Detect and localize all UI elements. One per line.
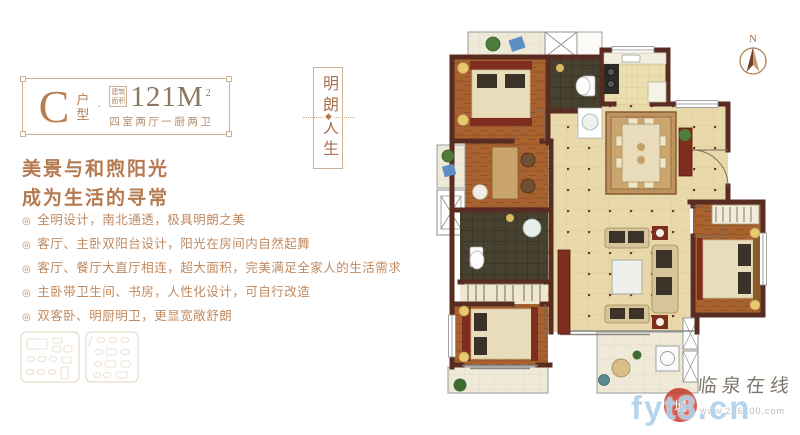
lamp-icon — [458, 115, 469, 126]
compass-icon: N — [740, 33, 766, 74]
washbasin-icon — [582, 114, 598, 130]
patio-table-icon — [612, 359, 630, 377]
headline-line1: 美景与和煦阳光 — [22, 155, 169, 184]
lamp-icon — [459, 352, 469, 362]
plaque-divider-dot: · — [97, 99, 101, 114]
feature-text: 双客卧、明厨明卫，更显宽敞舒朗 — [37, 305, 232, 324]
feature-text: 全明设计，南北通透，极具明朗之美 — [37, 209, 245, 228]
lamp-icon — [459, 306, 469, 316]
shaft-box — [577, 32, 602, 57]
bed-master — [459, 306, 538, 362]
banner-word-bottom: 人生 — [320, 119, 336, 161]
dining-set — [606, 112, 676, 194]
plant-icon — [454, 379, 467, 392]
stove-icon — [607, 80, 614, 87]
bullet-icon: ◎ — [22, 288, 31, 299]
feature-text: 客厅、主卧双阳台设计，阳光在房间内自然起舞 — [37, 233, 310, 252]
unit-label-char: 户 — [76, 93, 89, 108]
unit-type-label: 户 型 — [76, 93, 89, 123]
plant-icon — [679, 129, 691, 141]
dining-table — [622, 124, 660, 182]
plaque-corner — [20, 131, 26, 137]
unit-letter: C — [39, 86, 70, 127]
watermark-domain-large: fyt8.cn — [631, 389, 751, 427]
feature-item: ◎ 客厅、餐厅大直厅相连，超大面积，完美满足全家人的生活需求 — [22, 257, 407, 281]
chair-icon — [521, 153, 535, 167]
balcony-top — [468, 32, 545, 57]
toilet-icon — [470, 251, 484, 269]
desk — [492, 147, 518, 199]
feature-item: ◎ 主卧带卫生间、书房，人性化设计，可自行改造 — [22, 281, 407, 305]
unit-label-char: 型 — [76, 108, 89, 123]
bullet-icon: ◎ — [22, 312, 31, 323]
patio-chair-icon — [599, 375, 610, 386]
area-prefix: 建筑 面积 — [109, 86, 127, 107]
plant-icon — [633, 351, 642, 360]
feature-list: ◎ 全明设计，南北通透，极具明朗之美 ◎ 客厅、主卧双阳台设计，阳光在房间内自然… — [22, 209, 407, 329]
chair-icon — [521, 179, 535, 193]
bullet-icon: ◎ — [22, 216, 31, 227]
plaque-corner — [226, 131, 232, 137]
sink-icon — [622, 55, 640, 62]
plant-icon — [486, 37, 500, 51]
feature-item: ◎ 全明设计，南北通透，极具明朗之美 — [22, 209, 407, 233]
mini-floorplan-thumbnails — [20, 331, 139, 383]
armchair-icon — [473, 185, 488, 200]
tv-console — [558, 250, 570, 334]
feature-text: 客厅、餐厅大直厅相连，超大面积，完美满足全家人的生活需求 — [37, 257, 401, 276]
bathtub-icon — [523, 219, 541, 237]
area-block: 建筑 面积 121M 2 四室两厅一厨两卫 — [109, 84, 213, 130]
floorplan-drawing: N — [430, 25, 775, 400]
plant-icon — [442, 150, 454, 162]
mini-floorplan-2 — [85, 331, 139, 383]
feature-text: 主卧带卫生间、书房，人性化设计，可自行改造 — [37, 281, 310, 300]
bullet-icon: ◎ — [22, 240, 31, 251]
feature-item: ◎ 双客卧、明厨明卫，更显宽敞舒朗 — [22, 305, 407, 329]
bullet-icon: ◎ — [22, 264, 31, 275]
shower-icon — [556, 64, 564, 72]
compass-label: N — [749, 33, 757, 45]
area-superscript: 2 — [206, 88, 211, 99]
banner-diamond-icon: ◆ — [323, 111, 334, 122]
coffee-table — [612, 260, 642, 294]
wardrobe — [712, 205, 759, 224]
lamp-icon — [458, 63, 469, 74]
feature-item: ◎ 客厅、主卧双阳台设计，阳光在房间内自然起舞 — [22, 233, 407, 257]
washing-machine-icon — [656, 346, 679, 371]
plaque-corner — [20, 76, 26, 82]
plaque-corner — [226, 76, 232, 82]
fridge-icon — [648, 82, 666, 102]
area-value: 121M — [130, 84, 203, 112]
mini-floorplan-1 — [20, 331, 80, 383]
wardrobe-corridor — [460, 282, 548, 304]
headline: 美景与和煦阳光 成为生活的寻常 — [22, 155, 169, 214]
shower-icon — [506, 214, 514, 222]
stove-icon — [607, 68, 614, 75]
toilet-icon — [576, 77, 590, 95]
unit-title-plaque: C 户 型 · 建筑 面积 121M 2 四室两厅一厨两卫 — [22, 78, 230, 135]
lamp-icon — [750, 300, 760, 310]
lamp-icon — [750, 228, 760, 238]
rooms-summary: 四室两厅一厨两卫 — [109, 114, 213, 129]
foyer-console — [679, 128, 692, 176]
